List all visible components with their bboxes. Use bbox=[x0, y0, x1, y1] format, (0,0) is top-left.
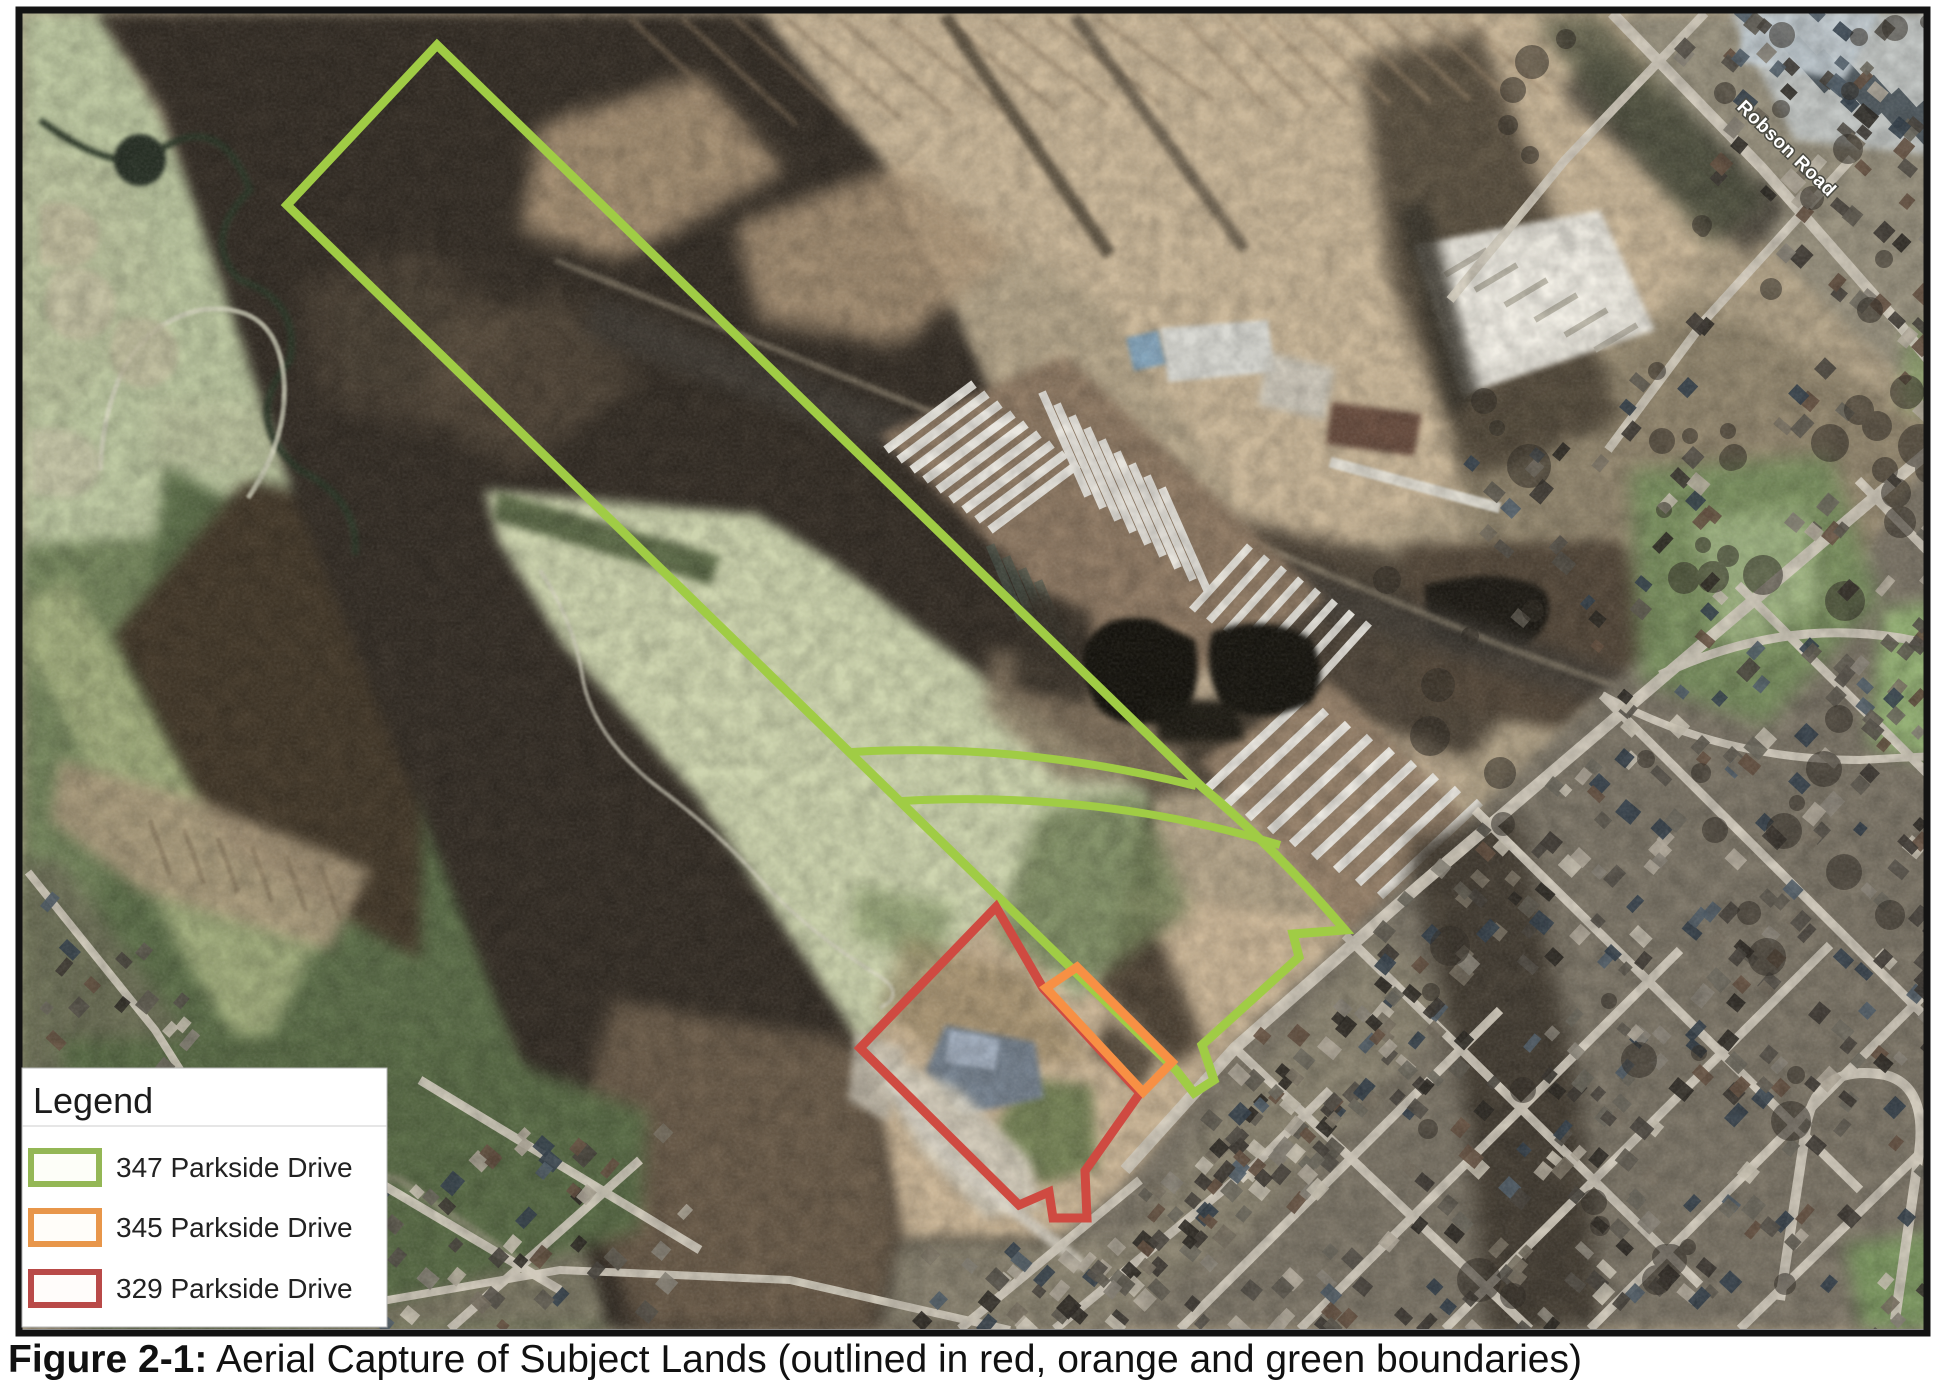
svg-text:Legend: Legend bbox=[33, 1080, 153, 1121]
svg-text:329 Parkside Drive: 329 Parkside Drive bbox=[116, 1273, 353, 1304]
svg-text:345 Parkside Drive: 345 Parkside Drive bbox=[116, 1212, 353, 1243]
svg-text:347 Parkside Drive: 347 Parkside Drive bbox=[116, 1152, 353, 1183]
